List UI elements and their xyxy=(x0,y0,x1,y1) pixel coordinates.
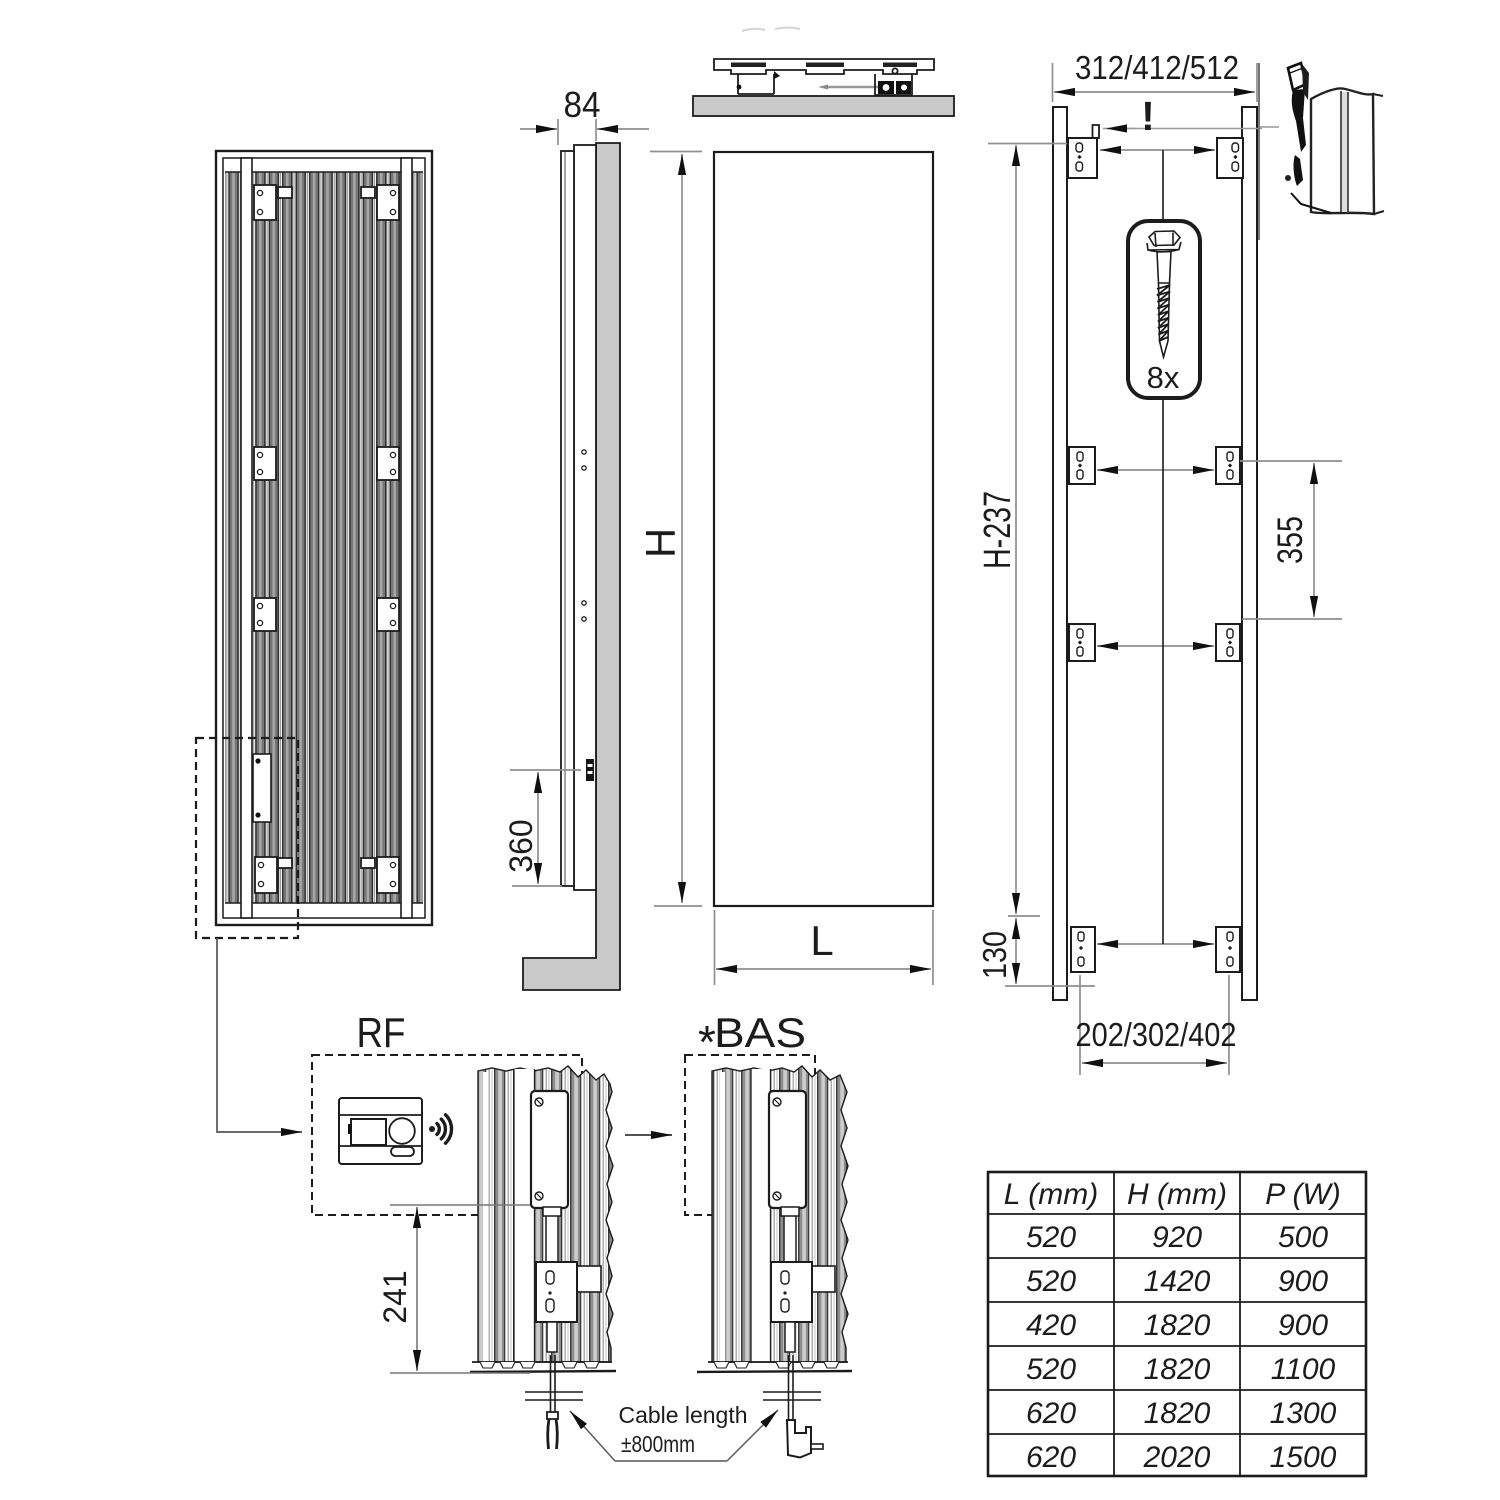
svg-text:520: 520 xyxy=(1026,1221,1076,1254)
svg-text:84: 84 xyxy=(564,84,601,125)
svg-text:!: ! xyxy=(1141,93,1155,139)
svg-text:P (W): P (W) xyxy=(1265,1178,1341,1211)
svg-text:1500: 1500 xyxy=(1270,1441,1337,1474)
svg-text:L: L xyxy=(810,917,833,964)
svg-text:360: 360 xyxy=(503,819,539,872)
svg-text:520: 520 xyxy=(1026,1265,1076,1298)
svg-text:H (mm): H (mm) xyxy=(1127,1178,1227,1211)
svg-text:130: 130 xyxy=(976,931,1013,979)
svg-text:BAS: BAS xyxy=(714,1009,806,1056)
svg-text:L (mm): L (mm) xyxy=(1004,1178,1098,1211)
svg-text:Cable length: Cable length xyxy=(619,1402,748,1428)
svg-text:1100: 1100 xyxy=(1271,1353,1336,1386)
svg-text:920: 920 xyxy=(1152,1221,1202,1254)
svg-text:202/302/402: 202/302/402 xyxy=(1076,1016,1237,1053)
svg-text:1820: 1820 xyxy=(1144,1309,1211,1342)
svg-text:355: 355 xyxy=(1271,516,1310,564)
svg-text:900: 900 xyxy=(1278,1265,1328,1298)
svg-text:620: 620 xyxy=(1026,1441,1076,1474)
svg-text:241: 241 xyxy=(377,1270,413,1323)
svg-text:1820: 1820 xyxy=(1144,1353,1211,1386)
svg-text:8x: 8x xyxy=(1147,360,1180,395)
svg-text:900: 900 xyxy=(1278,1309,1328,1342)
svg-text:RF: RF xyxy=(357,1009,406,1056)
svg-text:H: H xyxy=(637,528,684,558)
svg-text:500: 500 xyxy=(1278,1221,1328,1254)
svg-text:312/412/512: 312/412/512 xyxy=(1075,49,1239,86)
svg-text:520: 520 xyxy=(1026,1353,1076,1386)
svg-text:±800mm: ±800mm xyxy=(621,1431,695,1457)
svg-text:620: 620 xyxy=(1026,1397,1076,1430)
svg-text:H-237: H-237 xyxy=(977,491,1019,569)
svg-text:1820: 1820 xyxy=(1144,1397,1211,1430)
svg-text:420: 420 xyxy=(1026,1309,1076,1342)
svg-text:1420: 1420 xyxy=(1144,1265,1211,1298)
svg-text:1300: 1300 xyxy=(1270,1397,1337,1430)
svg-text:2020: 2020 xyxy=(1143,1441,1211,1474)
